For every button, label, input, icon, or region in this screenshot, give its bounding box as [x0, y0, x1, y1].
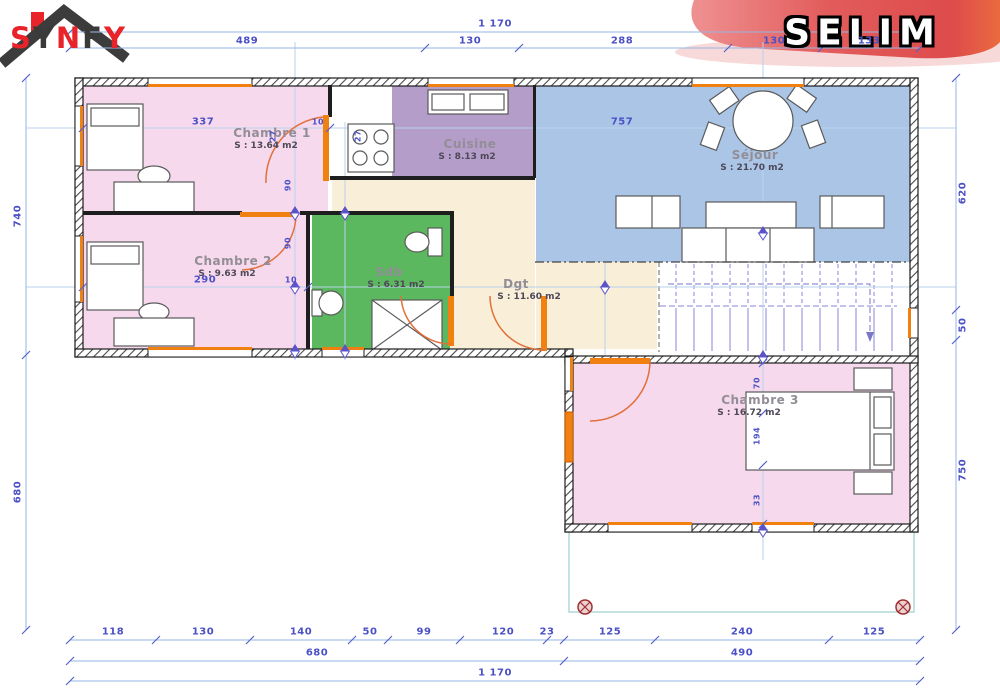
dim-interior: 33 [753, 494, 762, 506]
dim-top-seg: 130 [763, 36, 785, 47]
dim-bottom-seg: 140 [290, 627, 312, 638]
dim-interior: 90 [284, 179, 293, 191]
dim-bottom-seg: 130 [192, 627, 214, 638]
side-table-left [616, 196, 680, 228]
dim-bottom-total: 1 170 [478, 668, 512, 679]
sofa [682, 228, 814, 262]
dim-bottom-seg: 240 [731, 627, 753, 638]
stairs [659, 262, 897, 352]
label-cuisine: Cuisine [444, 137, 497, 151]
bed-chambre1 [87, 104, 143, 170]
area-cuisine: S : 8.13 m2 [438, 152, 495, 162]
dim-bottom-seg: 118 [102, 627, 124, 638]
dim-interior: 27 [269, 130, 278, 142]
dim-top-seg: 130 [459, 36, 481, 47]
nightstand-top [854, 368, 892, 390]
column-marker [896, 600, 910, 614]
dim-interior: 290 [194, 275, 216, 286]
synfy-logo: SYNFY [10, 24, 127, 53]
dim-interior: 90 [284, 237, 293, 249]
dim-right: 750 [958, 459, 969, 481]
dim-bottom-subtotal: 490 [731, 648, 753, 659]
dim-interior: 10 [312, 118, 324, 127]
area-sdb: S : 6.31 m2 [367, 280, 424, 290]
dim-interior: 194 [753, 427, 762, 445]
area-sejour: S : 21.70 m2 [720, 163, 784, 173]
area-chambre1: S : 13.64 m2 [234, 141, 298, 151]
dim-interior: 70 [753, 377, 762, 389]
nightstand-bottom [854, 472, 892, 494]
dim-right: 620 [958, 182, 969, 204]
dim-bottom-seg: 125 [599, 627, 621, 638]
area-chambre3: S : 16.72 m2 [717, 408, 781, 418]
dim-right: 50 [958, 318, 969, 333]
dim-top-seg: 489 [236, 36, 258, 47]
label-chambre2: Chambre 2 [194, 254, 272, 268]
bathroom-sink-icon [312, 290, 343, 316]
dim-interior: 757 [611, 117, 633, 128]
area-dgt: S : 11.60 m2 [497, 292, 561, 302]
logo-letter: Y [104, 21, 127, 55]
room-dgt-2 [536, 262, 657, 349]
shower-icon [372, 300, 442, 350]
label-chambre3: Chambre 3 [721, 393, 799, 407]
logo-letter: Y [33, 21, 56, 55]
label-sejour: Séjour [732, 148, 779, 162]
column-marker [578, 600, 592, 614]
entrance-door-frame [565, 412, 573, 462]
label-sdb: Sdb [375, 265, 402, 279]
dim-bottom-subtotal: 680 [306, 648, 328, 659]
dim-left: 740 [13, 205, 24, 227]
floor-plan-drawing [0, 0, 1000, 700]
dim-bottom-seg: 50 [363, 627, 378, 638]
logo-letter: S [10, 21, 33, 55]
kitchen-sink-icon [428, 90, 508, 114]
logo-letter: N [56, 21, 82, 55]
dim-left: 680 [13, 481, 24, 503]
label-dgt: Dgt [503, 277, 529, 291]
dim-bottom-seg: 125 [863, 627, 885, 638]
dim-interior: 27 [354, 130, 363, 142]
selim-banner-title: SELIM [784, 13, 942, 54]
coffee-table [706, 202, 796, 228]
dim-bottom-seg: 120 [492, 627, 514, 638]
dim-top-seg: 288 [611, 36, 633, 47]
dim-interior: 10 [285, 276, 297, 285]
terrace [569, 532, 914, 614]
dim-bottom-seg: 23 [540, 627, 555, 638]
dim-bottom-seg: 99 [417, 627, 432, 638]
dim-top-total: 1 170 [478, 19, 512, 30]
bed-chambre2 [87, 242, 143, 310]
logo-letter: F [82, 21, 104, 55]
floor-plan-canvas: SYNFY SELIM Chambre 1 S : 13.64 m2 Chamb… [0, 0, 1000, 700]
dim-top-seg: 133 [858, 36, 880, 47]
side-table-right [820, 196, 884, 228]
dim-interior: 337 [192, 117, 214, 128]
